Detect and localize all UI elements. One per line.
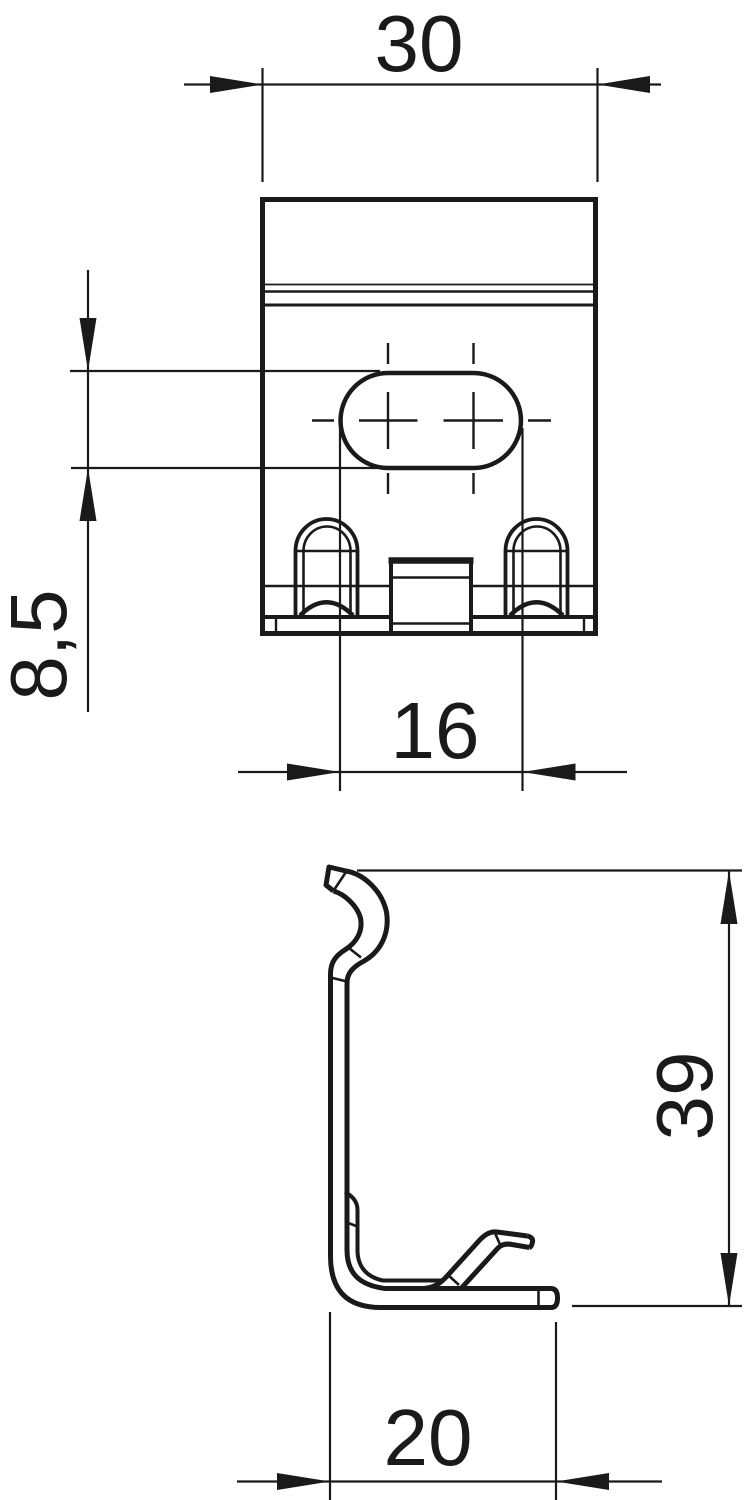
dim-label-slot-width: 16 (391, 686, 480, 775)
drawing-canvas: 30 8,5 16 39 20 (0, 0, 747, 1500)
part-outline (263, 200, 596, 634)
side-view (326, 867, 558, 1308)
arrow-right-icon (277, 1473, 330, 1490)
dim-label-overall-height: 39 (640, 1052, 729, 1141)
profile-center-tab-fold (345, 1192, 443, 1281)
profile-cut-ticks (331, 872, 539, 1307)
dim-overall-height: 39 (357, 871, 742, 1307)
center-tab-sides (391, 561, 471, 633)
left-clip-bump (300, 602, 353, 615)
profile-hook-outer (346, 871, 387, 1250)
dim-foot-depth: 20 (237, 1312, 662, 1500)
arrow-down-icon (80, 318, 97, 371)
technical-drawing-page: 30 8,5 16 39 20 (0, 0, 747, 1500)
dim-slot-height: 8,5 (0, 270, 389, 712)
dim-label-overall-width: 30 (375, 0, 464, 88)
dim-overall-width: 30 (184, 0, 661, 182)
bottom-corner-ticks (276, 617, 584, 633)
dim-slot-height-lines (70, 270, 389, 712)
front-view (262, 200, 596, 634)
arrow-down-icon (721, 1253, 738, 1306)
arrow-up-icon (80, 468, 97, 521)
arrow-up-icon (721, 871, 738, 924)
dim-label-foot-depth: 20 (384, 1393, 473, 1482)
right-clip-bump (510, 602, 563, 615)
arrow-left-icon (210, 76, 263, 93)
slot-centerlines (312, 343, 551, 494)
arrow-right-icon (598, 76, 651, 93)
center-tab-lines (392, 578, 470, 624)
arrow-left-icon (523, 764, 576, 781)
arrow-right-icon (287, 764, 340, 781)
arrow-left-icon (556, 1473, 609, 1490)
dim-label-slot-height: 8,5 (0, 589, 83, 700)
